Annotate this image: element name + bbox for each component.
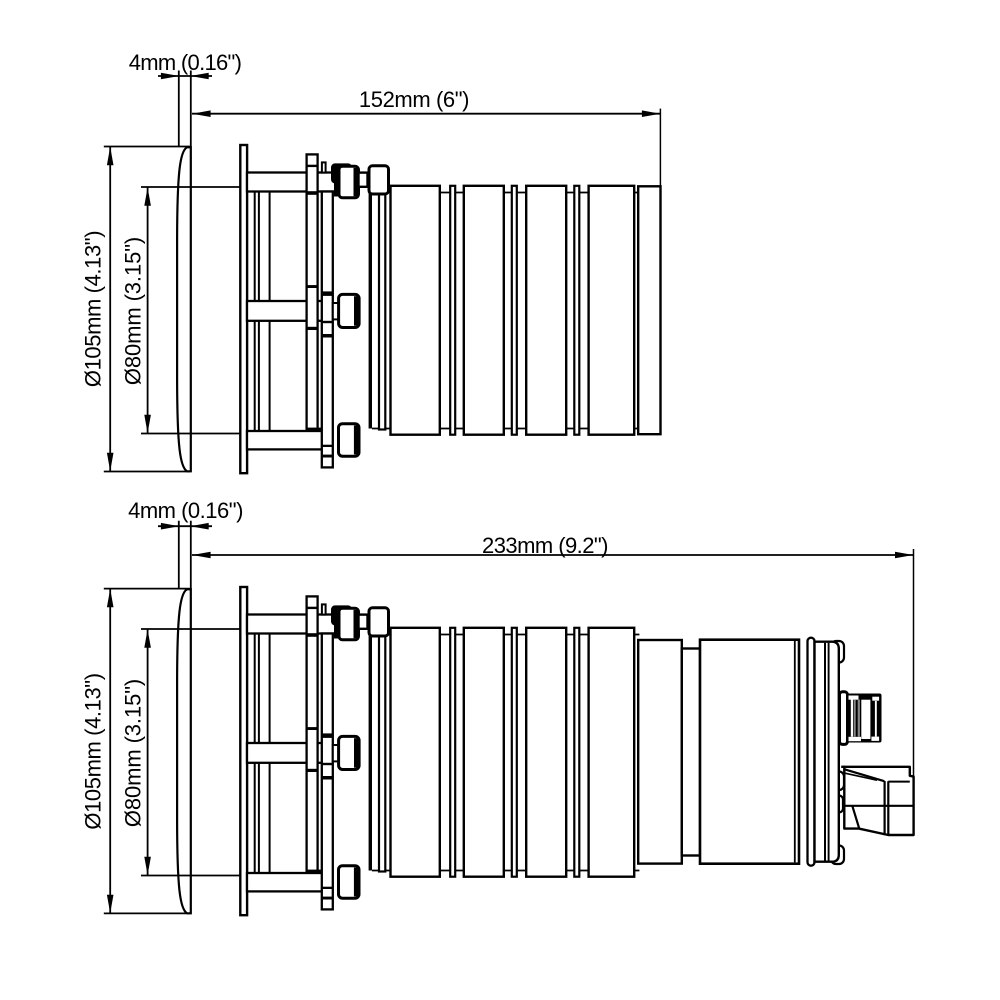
svg-text:Ø80mm (3.15"): Ø80mm (3.15") (121, 679, 146, 827)
svg-text:Ø80mm (3.15"): Ø80mm (3.15") (121, 237, 146, 385)
svg-text:Ø105mm (4.13"): Ø105mm (4.13") (81, 231, 106, 387)
svg-text:4mm (0.16"): 4mm (0.16") (128, 498, 243, 523)
svg-text:4mm (0.16"): 4mm (0.16") (129, 50, 242, 75)
svg-text:152mm (6"): 152mm (6") (359, 87, 469, 112)
svg-text:Ø105mm (4.13"): Ø105mm (4.13") (81, 673, 106, 829)
